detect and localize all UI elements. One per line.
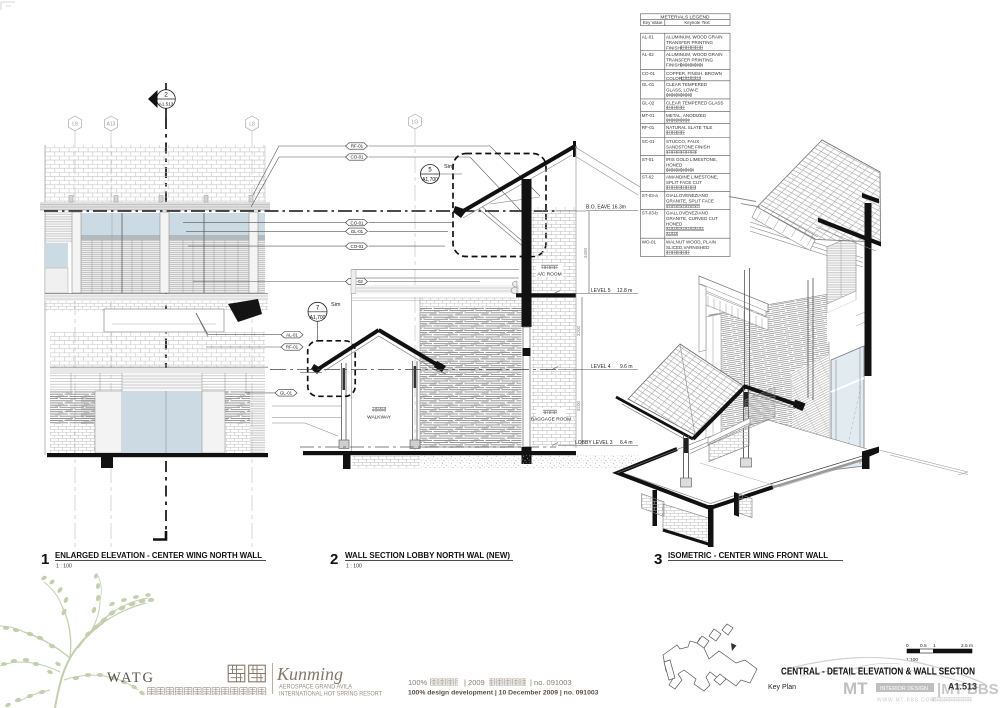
svg-text:2: 2 — [164, 92, 168, 99]
svg-text:2.5 m: 2.5 m — [961, 643, 973, 649]
svg-text:1: 1 — [933, 643, 936, 649]
svg-text:BAGGAGE ROOM: BAGGAGE ROOM — [531, 417, 571, 423]
svg-text:FINISH: FINISH — [666, 45, 681, 50]
svg-text:GRANITE, SPLIT FACE: GRANITE, SPLIT FACE — [666, 198, 714, 203]
svg-text:100%: 100% — [408, 678, 428, 687]
svg-text:ENLARGED ELEVATION - CENTER WI: ENLARGED ELEVATION - CENTER WING NORTH W… — [55, 550, 263, 560]
svg-text:WALKWAY: WALKWAY — [367, 415, 392, 421]
svg-text:STUCCO, FAUX: STUCCO, FAUX — [666, 139, 699, 144]
svg-text:CLEAR TEMPERED: CLEAR TEMPERED — [666, 82, 708, 87]
svg-text:ST-02: ST-02 — [642, 175, 655, 180]
svg-text:0.5: 0.5 — [920, 643, 927, 649]
svg-text:RF-01: RF-01 — [642, 125, 655, 130]
svg-text:LEVEL 4: LEVEL 4 — [591, 364, 611, 370]
svg-text:6.4 m: 6.4 m — [620, 440, 633, 446]
svg-text:AL-01: AL-01 — [286, 332, 298, 337]
svg-text:A/C ROOM: A/C ROOM — [537, 272, 561, 278]
svg-text:0: 0 — [906, 643, 909, 649]
svg-text:TRANSFER PRINTING: TRANSFER PRINTING — [666, 40, 714, 45]
svg-text:GLASS, LOW-E: GLASS, LOW-E — [666, 88, 698, 93]
svg-text:INTERNATIONAL HOT SPRING RESOR: INTERNATIONAL HOT SPRING RESORT — [279, 691, 382, 698]
svg-text:AL-02: AL-02 — [642, 52, 655, 57]
svg-text:WALNUT WOOD, PLAIN: WALNUT WOOD, PLAIN — [666, 240, 716, 245]
svg-text:Sim: Sim — [331, 302, 341, 308]
svg-text:ST-03-b: ST-03-b — [642, 211, 659, 216]
svg-text:Keynote Text: Keynote Text — [684, 20, 710, 25]
svg-text:GL-01: GL-01 — [280, 391, 293, 396]
svg-text:B.O. EAVE: B.O. EAVE — [586, 205, 611, 211]
svg-text:CO-01: CO-01 — [351, 220, 364, 225]
svg-text:ISOMETRIC - CENTER WING FRONT: ISOMETRIC - CENTER WING FRONT WALL — [668, 550, 829, 560]
svg-text:ST-03-a: ST-03-a — [642, 193, 659, 198]
svg-text:CO-01: CO-01 — [351, 155, 364, 160]
svg-text:SC-01: SC-01 — [642, 139, 655, 144]
svg-text:ALUMINUM, WOOD GRAIN: ALUMINUM, WOOD GRAIN — [666, 35, 723, 40]
svg-text:HONED: HONED — [666, 222, 683, 227]
svg-text:3200: 3200 — [576, 325, 581, 336]
svg-text:WALL SECTION LOBBY NORTH WAL (: WALL SECTION LOBBY NORTH WAL (NEW) — [345, 550, 510, 560]
svg-text:METAL, ANODIZED: METAL, ANODIZED — [666, 113, 707, 118]
svg-text:12.8 m: 12.8 m — [617, 288, 632, 294]
svg-text:| 2009: | 2009 — [464, 678, 485, 687]
svg-text:MT: MT — [843, 679, 868, 698]
svg-text:1 : 100: 1 : 100 — [346, 564, 362, 570]
svg-text:HONED: HONED — [666, 163, 683, 168]
svg-text:3200: 3200 — [576, 400, 581, 411]
svg-text:100% design development | 10: 100% design development | 10 December 20… — [408, 690, 599, 697]
svg-text:IRIS GOLD LIMESTONE,: IRIS GOLD LIMESTONE, — [666, 157, 717, 162]
svg-text:Kunming: Kunming — [276, 664, 343, 684]
svg-text:L8: L8 — [249, 122, 255, 128]
svg-text:CENTRAL - DETAIL ELEVATION & W: CENTRAL - DETAIL ELEVATION & WALL SECTIO… — [781, 666, 975, 678]
svg-text:SPLIT FACE CUT: SPLIT FACE CUT — [666, 180, 702, 185]
svg-text:INTERIOR DESIGN: INTERIOR DESIGN — [880, 686, 928, 692]
svg-text:WWW.MT-BBS.COM: WWW.MT-BBS.COM — [877, 698, 935, 704]
svg-text:2: 2 — [330, 551, 338, 568]
svg-text:FINISH: FINISH — [666, 63, 681, 68]
svg-text:Sim: Sim — [444, 164, 454, 170]
svg-text:SLICED,VARNISHED: SLICED,VARNISHED — [666, 245, 710, 250]
svg-text:AL-01: AL-01 — [642, 35, 655, 40]
svg-text:A1.513: A1.513 — [159, 101, 174, 106]
svg-text:GRANITE, CURVED CUT: GRANITE, CURVED CUT — [666, 216, 718, 221]
svg-text:3: 3 — [654, 551, 662, 568]
svg-text:AEROSPACE GRAND AVILA: AEROSPACE GRAND AVILA — [279, 684, 353, 691]
svg-text:LG: LG — [412, 120, 419, 126]
svg-text:RF-01: RF-01 — [286, 345, 299, 350]
svg-text:GIALLOVENEZIANO: GIALLOVENEZIANO — [666, 211, 709, 216]
svg-text:1 : 100: 1 : 100 — [56, 564, 72, 570]
svg-text:A13: A13 — [107, 122, 116, 128]
svg-text:RF-01: RF-01 — [351, 144, 364, 149]
svg-text:3490: 3490 — [583, 247, 588, 258]
svg-text:WO-01: WO-01 — [642, 240, 657, 245]
svg-text:Key Value: Key Value — [643, 20, 663, 25]
svg-text:16.3m: 16.3m — [612, 205, 626, 211]
svg-text:GL-01: GL-01 — [351, 229, 364, 234]
svg-text:A1,700: A1,700 — [310, 315, 326, 321]
svg-text:A1.513: A1.513 — [948, 682, 977, 692]
svg-text:ST-01: ST-01 — [642, 157, 655, 162]
svg-text:GL-02: GL-02 — [642, 100, 655, 105]
svg-text:MT-01: MT-01 — [642, 113, 655, 118]
svg-text:1: 1 — [41, 551, 49, 568]
svg-text:9.6 m: 9.6 m — [620, 364, 633, 370]
svg-text:GIALLOVENEZIANO: GIALLOVENEZIANO — [666, 193, 709, 198]
svg-text:L9: L9 — [72, 122, 78, 128]
svg-text:Key Plan: Key Plan — [768, 684, 796, 691]
svg-text:SANDSTONE FINISH: SANDSTONE FINISH — [666, 144, 710, 149]
svg-text:CLEAR TEMPERED GLASS: CLEAR TEMPERED GLASS — [666, 100, 723, 105]
svg-text:WATG: WATG — [107, 670, 154, 686]
svg-text:ALUMINUM, WOOD GRAIN: ALUMINUM, WOOD GRAIN — [666, 52, 723, 57]
svg-text:LOBBY LEVEL 3: LOBBY LEVEL 3 — [575, 440, 613, 446]
svg-text:TRANSFER PRINTING: TRANSFER PRINTING — [666, 57, 714, 62]
svg-text:COLOR: COLOR — [666, 76, 683, 81]
svg-text:AMANDINE LIMESTONE,: AMANDINE LIMESTONE, — [666, 175, 718, 180]
svg-text:CO-01: CO-01 — [642, 71, 656, 76]
svg-text:A1,700: A1,700 — [422, 177, 438, 183]
svg-text:| no. 091003: | no. 091003 — [530, 678, 572, 687]
svg-text:LEVEL 5: LEVEL 5 — [591, 288, 611, 294]
svg-text:CO-01: CO-01 — [351, 244, 364, 249]
svg-text:NATURAL SLATE TILE: NATURAL SLATE TILE — [666, 125, 712, 130]
svg-text:GL-01: GL-01 — [642, 82, 655, 87]
